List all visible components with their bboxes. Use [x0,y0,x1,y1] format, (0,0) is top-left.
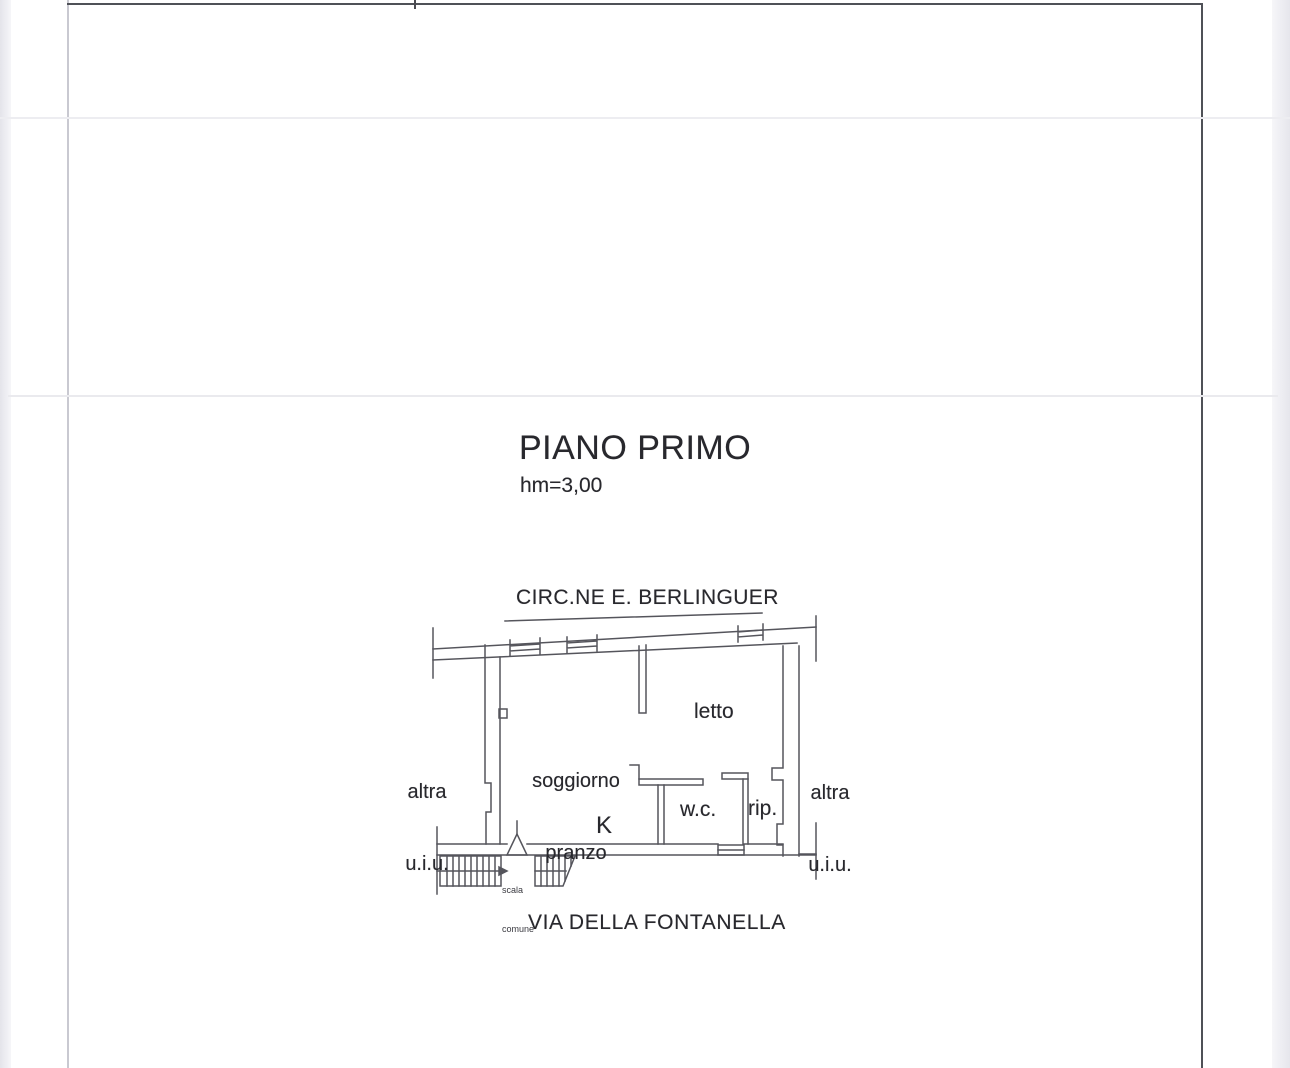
street-label-top: CIRC.NE E. BERLINGUER [516,586,779,610]
window-symbol [738,624,763,642]
adjacent-unit-right-line1: altra [790,781,870,805]
stairs-label: scala comune [502,858,534,962]
partition-living-bedroom [639,645,646,713]
floor-height-note: hm=3,00 [520,474,602,498]
floor-plan-drawing [0,0,1290,1068]
scanned-floorplan-page: PIANO PRIMO hm=3,00 CIRC.NE E. BERLINGUE… [0,0,1290,1068]
room-label-living-line1: soggiorno [516,769,636,793]
adjacent-unit-right-line2: u.i.u. [790,853,870,877]
wc-top-wall [639,779,703,785]
stairs-label-line2: comune [502,923,534,936]
street-edge-line [505,613,762,621]
stairs-label-line1: scala [502,884,534,897]
storage-wall-cap [722,773,748,779]
window-symbol [510,638,540,656]
adjacent-unit-label-left: altra u.i.u. [387,732,467,924]
window-symbol [567,635,597,653]
floor-title: PIANO PRIMO [519,429,751,467]
bottom-window-symbol [718,845,744,855]
room-label-bedroom: letto [694,700,734,724]
wc-left-wall [658,785,664,844]
room-label-wc: w.c. [680,798,716,822]
adjacent-unit-label-right: altra u.i.u. [790,733,870,925]
street-label-bottom: VIA DELLA FONTANELLA [528,911,786,935]
left-wall-outer [485,645,491,844]
adjacent-unit-left-line2: u.i.u. [387,852,467,876]
room-label-kitchen: K [596,812,612,840]
right-wall-inner [772,646,783,856]
adjacent-unit-left-line1: altra [387,780,467,804]
room-label-storage: rip. [748,797,777,821]
